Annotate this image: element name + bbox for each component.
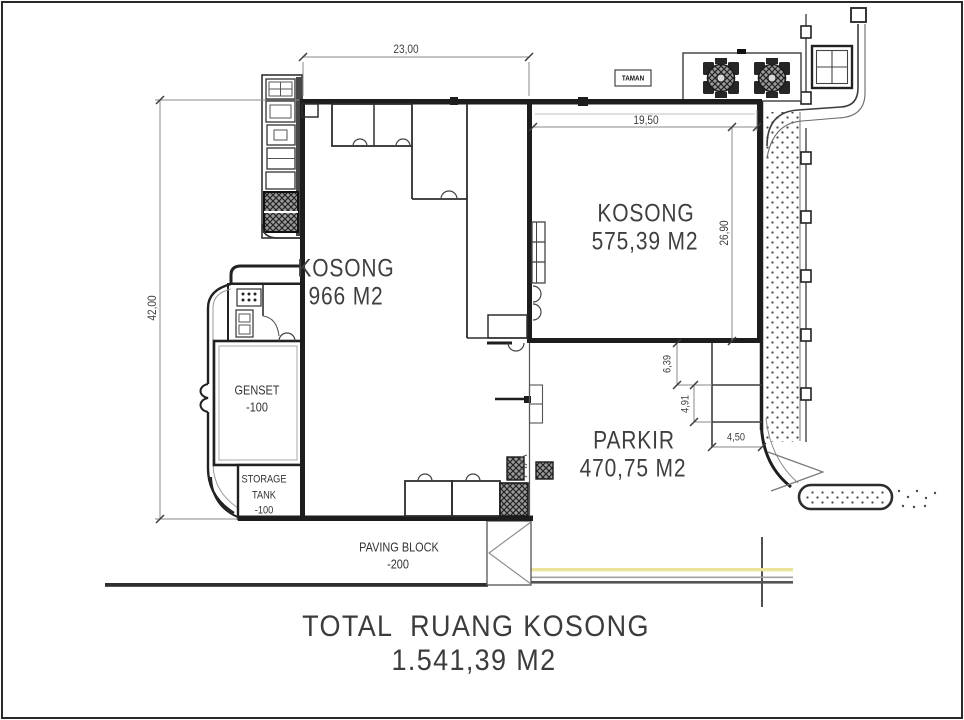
taman-zone [615,46,852,101]
room-label-storage-2: TANK [252,491,276,502]
room-area-kosong-right: 575,39 M2 [592,230,699,255]
room-area-kosong-main: 966 M2 [308,285,383,310]
road-yellow-line [531,568,793,571]
table-planter-icon [754,58,790,98]
floor-plan: 23,00 42,00 19,50 26,90 6,39 4,91 4,50 K… [0,0,964,720]
dim-left-height: 42,00 [146,295,158,320]
stair-block [500,483,528,516]
summary-title: TOTAL RUANG KOSONG [302,612,650,642]
area-label-paving-block: PAVING BLOCK [359,541,439,554]
area-level-paving-block: -200 [387,558,409,571]
area-label-taman: TAMAN [622,74,644,82]
summary-value: 1.541,39 M2 [392,646,557,676]
room-level-storage: -100 [255,506,274,517]
dim-kosong2-width: 19,50 [633,114,658,126]
room-label-kosong-right: KOSONG [597,202,694,227]
electrical-panel-icon [237,289,261,306]
service-strip [262,75,303,238]
column [578,97,588,106]
room-label-storage-1: STORAGE [241,475,286,486]
guard-post [812,46,852,88]
room-label-kosong-main: KOSONG [297,257,394,282]
road-dots [898,490,936,508]
gate-symbol [487,521,531,585]
dim-kosong2-height: 26,90 [718,220,730,245]
dim-parkir-step3: 4,50 [727,433,745,444]
dim-parkir-step2: 4,91 [681,395,692,413]
dim-top-width: 23,00 [393,43,418,55]
room-label-genset: GENSET [235,384,280,397]
room-level-genset: -100 [246,401,268,414]
rolling-door [532,222,545,283]
dim-parkir-step1: 6,39 [663,355,674,373]
south-boundary-line [105,583,488,587]
table-planter-icon [703,58,739,98]
column [450,97,458,105]
room-label-parkir: PARKIR [593,429,675,454]
cabinet-icon [236,310,253,337]
room-area-parkir: 470,75 M2 [580,457,687,482]
